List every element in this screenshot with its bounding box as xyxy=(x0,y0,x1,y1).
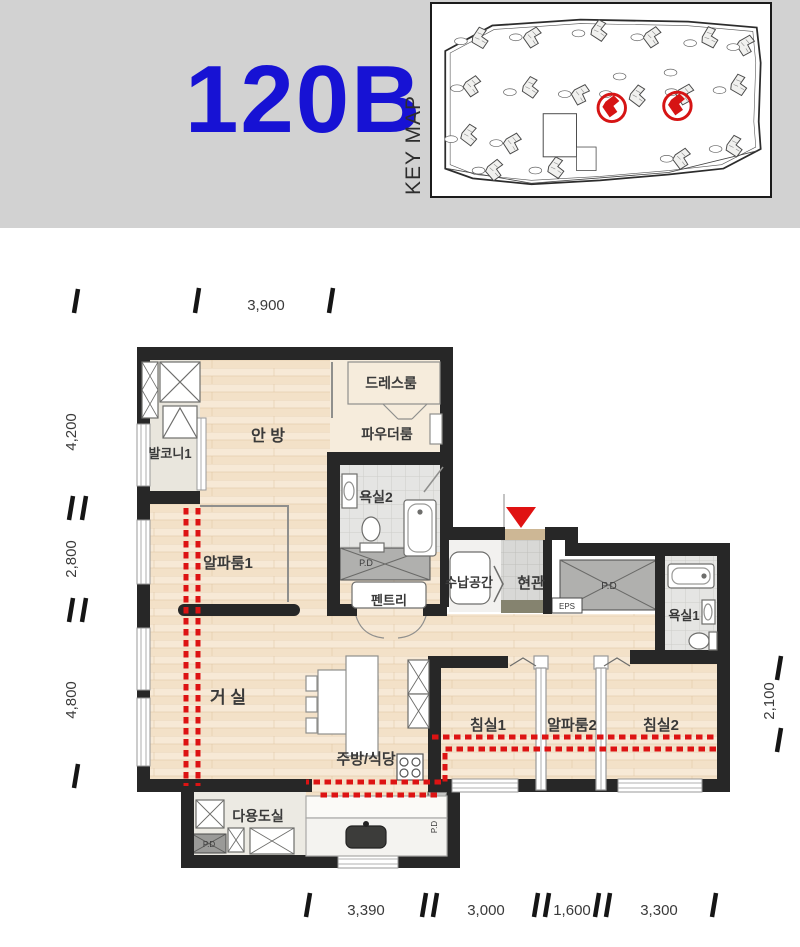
room-label-powder: 파우더룸 xyxy=(361,426,413,442)
entry-direction-arrow xyxy=(506,507,536,528)
room-label-alpha2: 알파룸2 xyxy=(547,717,597,734)
room-label-alpha1: 알파룸1 xyxy=(203,555,253,572)
room-label-entry: 현관 xyxy=(517,575,545,592)
dim-top: 3,900 xyxy=(247,297,285,314)
room-label-bath1: 욕실1 xyxy=(668,608,699,623)
room-label-storage: 수납공간 xyxy=(445,575,493,590)
page: 120B KEY MAP xyxy=(0,0,800,947)
dim-right: 2,100 xyxy=(761,682,778,720)
room-label-master: 안 방 xyxy=(251,427,285,445)
room-label-bed1: 침실1 xyxy=(470,717,506,734)
room-label-bath2: 욕실2 xyxy=(359,489,393,505)
shaft-label-pd-2: P.D xyxy=(601,581,616,592)
room-label-dressroom: 드레스룸 xyxy=(365,375,417,391)
shaft-label-pd-4: P.D xyxy=(430,821,439,834)
room-label-utility: 다용도실 xyxy=(232,808,284,824)
room-label-living: 거 실 xyxy=(210,688,246,707)
shaft-label-eps: EPS xyxy=(559,602,575,611)
floor-plan: 안 방 드레스룸 파우더룸 발코니1 알파룸1 욕실2 수납공간 현관 펜트리 … xyxy=(0,0,800,947)
dim-bottom-1: 3,390 xyxy=(347,902,385,919)
room-label-kitchen: 주방/식당 xyxy=(336,750,396,768)
room-label-balcony1: 발코니1 xyxy=(148,446,191,461)
room-label-bed2: 침실2 xyxy=(643,717,679,734)
dim-left-upper: 4,200 xyxy=(63,413,80,451)
dim-bottom-4: 3,300 xyxy=(640,902,678,919)
dim-bottom-3: 1,600 xyxy=(553,902,591,919)
shaft-label-pd-3: P.D xyxy=(203,840,216,849)
dim-left-lower: 4,800 xyxy=(63,681,80,719)
room-label-pantry: 펜트리 xyxy=(371,593,407,608)
dim-left-middle: 2,800 xyxy=(63,540,80,578)
shaft-label-pd-1: P.D xyxy=(359,558,373,568)
dim-bottom-2: 3,000 xyxy=(467,902,505,919)
